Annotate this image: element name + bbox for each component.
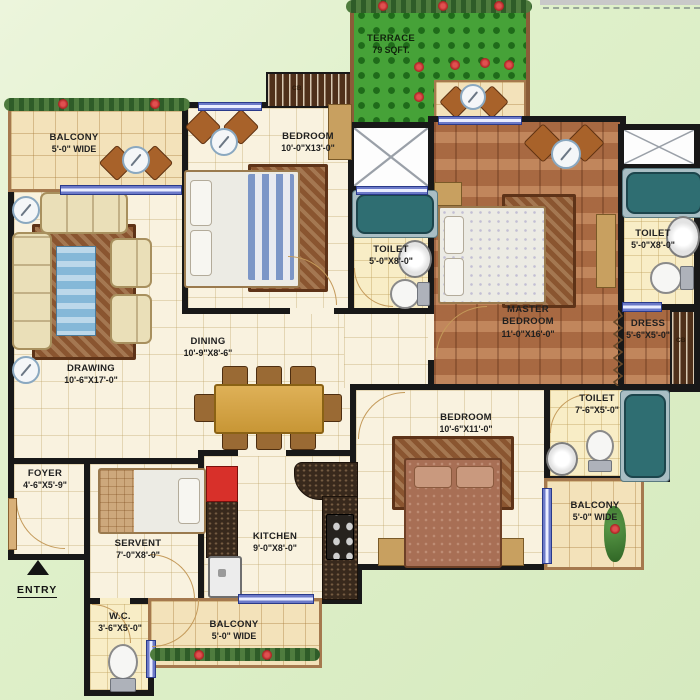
drawing-rug-runner	[56, 246, 96, 336]
room-dims: 5'-0"X8'-0"	[616, 240, 690, 251]
entry-label: ENTRY	[17, 584, 57, 598]
fan-icon	[12, 196, 40, 224]
room-dims: 5'-0" WIDE	[550, 512, 640, 523]
room-label-terrace: TERRACE 79 SQFT.	[358, 33, 424, 57]
washbasin-icon	[546, 442, 578, 476]
side-table	[378, 538, 406, 566]
room-name: TERRACE	[358, 33, 424, 45]
entry-arrow-icon	[27, 560, 49, 575]
bedroom-bottom-bed	[404, 458, 502, 568]
flower-icon	[194, 650, 204, 660]
room-name: W.C.	[88, 611, 152, 623]
toilet-bowl	[586, 430, 614, 462]
room-label-balcony-tl: BALCONY 5'-0" WIDE	[18, 132, 130, 156]
room-balcony-bottom-right	[544, 478, 644, 570]
room-label-servant: SERVENT 7'-0"X8'-0"	[92, 538, 184, 562]
round-table-icon	[460, 84, 486, 110]
room-label-bedroom-bottom: BEDROOM 10'-6"X11'-0"	[408, 412, 524, 436]
room-label-balcony-br: BALCONY 5'-0" WIDE	[550, 500, 640, 524]
bed-pillow	[190, 180, 212, 226]
kitchen-counter-red	[206, 466, 238, 502]
toilet-tank	[110, 678, 136, 692]
toilet-icon	[584, 430, 616, 472]
bed-pillow	[444, 216, 464, 254]
bed-pillow	[444, 258, 464, 296]
flower-icon	[438, 1, 448, 11]
room-label-foyer: FOYER 4'-6"X5'-9"	[6, 468, 84, 492]
plot-boundary-strip	[540, 0, 700, 5]
toilet-tank	[588, 460, 612, 472]
room-dims: 7'-0"X8'-0"	[92, 550, 184, 561]
dining-table	[214, 384, 324, 434]
window-bedroom-top	[198, 102, 262, 111]
bedroom-top-bed	[184, 170, 300, 288]
room-name: DINING	[166, 336, 250, 348]
room-label-dining: DINING 10'-9"X8'-6"	[166, 336, 250, 360]
room-dims: 7'-6"X5'-0"	[556, 405, 638, 416]
flower-icon	[494, 1, 504, 11]
room-dims: 10'-6"X11'-0"	[408, 424, 524, 435]
room-label-dress: DRESS 5'-6"X5'-0"	[614, 318, 682, 342]
room-label-drawing: DRAWING 10'-6"X17'-0"	[48, 363, 134, 387]
room-name: BALCONY	[18, 132, 130, 144]
flower-icon	[150, 99, 160, 109]
room-dims: 11'-0"X16'-0"	[488, 329, 568, 340]
toilet-bowl	[108, 644, 138, 680]
kitchen-sink	[208, 556, 242, 598]
room-name: MASTER BEDROOM	[488, 304, 568, 329]
round-table-icon	[551, 139, 581, 169]
armchair-1	[110, 238, 152, 288]
room-name: DRAWING	[48, 363, 134, 375]
room-dims: 79 SQFT.	[358, 45, 424, 56]
room-label-master-bedroom: MASTER BEDROOM 11'-0"X16'-0"	[488, 304, 568, 340]
toilet-icon	[104, 644, 140, 692]
flower-icon	[504, 60, 514, 70]
wardrobe-cupboard-top	[266, 72, 354, 108]
opening-kitchen	[238, 450, 286, 456]
toilet-bowl	[650, 262, 682, 294]
room-name: DRESS	[614, 318, 682, 330]
room-label-toilet-mid: TOILET 5'-0"X8'-0"	[350, 244, 432, 268]
bed-pillow	[414, 466, 452, 488]
side-table	[434, 182, 462, 206]
room-name: TOILET	[556, 393, 638, 405]
toilet-tank	[417, 282, 430, 306]
room-dims: 5'-0" WIDE	[18, 144, 130, 155]
toilet-icon	[650, 258, 694, 296]
floor-plan: BALCONY 5'-0" WIDE BEDROOM 10'-0"X13'-0"…	[0, 0, 700, 700]
window-balcony-tl	[60, 185, 182, 195]
bed-pillow	[456, 466, 494, 488]
room-dims: 5'-0"X8'-0"	[350, 256, 432, 267]
flower-icon	[378, 1, 388, 11]
room-dims: 10'-9"X8'-6"	[166, 348, 250, 359]
servant-bed	[98, 468, 206, 534]
door-opening-bedroom-top	[290, 308, 334, 314]
room-name: TOILET	[350, 244, 432, 256]
window-toilet-right	[622, 302, 662, 312]
sofa-three-seater-top	[40, 192, 128, 234]
cupboard-label: CB	[292, 85, 301, 92]
plot-boundary-dashed-line	[543, 7, 700, 9]
toilet-bowl	[390, 279, 420, 309]
bathtub-icon	[352, 190, 438, 238]
room-dims: 9'-0"X8'-0"	[232, 543, 318, 554]
room-name: FOYER	[6, 468, 84, 480]
flower-icon	[450, 60, 460, 70]
toilet-icon	[390, 276, 430, 310]
flower-icon	[414, 62, 424, 72]
room-name: BEDROOM	[258, 131, 358, 143]
room-dims: 5'-6"X5'-0"	[614, 330, 682, 341]
bed-pillow	[178, 478, 200, 524]
round-table-icon	[210, 128, 238, 156]
armchair-2	[110, 294, 152, 344]
room-name: SERVENT	[92, 538, 184, 550]
room-name: KITCHEN	[232, 531, 318, 543]
dresser-cabinet	[596, 214, 616, 288]
flower-icon	[58, 99, 68, 109]
flower-icon	[610, 524, 620, 534]
gas-hob-icon	[326, 514, 354, 560]
room-label-toilet-right: TOILET 5'-0"X8'-0"	[616, 228, 690, 252]
room-name: BALCONY	[178, 619, 290, 631]
room-dims: 4'-6"X5'-9"	[6, 480, 84, 491]
room-label-bedroom-top: BEDROOM 10'-0"X13'-0"	[258, 131, 358, 155]
room-dims: 10'-0"X13'-0"	[258, 143, 358, 154]
door-leaf-entry	[8, 498, 17, 550]
flower-icon	[262, 650, 272, 660]
bed-pillow	[190, 230, 212, 276]
room-label-wc: W.C. 3'-6"X5'-0"	[88, 611, 152, 635]
sofa-three-seater-left	[12, 232, 52, 350]
window-toilet-mid	[356, 186, 428, 195]
dining-chair	[194, 394, 216, 422]
flower-icon	[414, 92, 424, 102]
door-opening-wc	[100, 598, 130, 604]
room-name: BEDROOM	[408, 412, 524, 424]
toilet-tank	[680, 266, 694, 290]
bathtub-icon	[622, 168, 700, 218]
room-dims: 10'-6"X17'-0"	[48, 375, 134, 386]
window-master-bedroom	[438, 116, 522, 125]
room-name: TOILET	[616, 228, 690, 240]
garland-decoration	[150, 648, 320, 661]
room-dims: 5'-0" WIDE	[178, 631, 290, 642]
flower-icon	[480, 58, 490, 68]
room-name: BALCONY	[550, 500, 640, 512]
passage-floor	[344, 310, 434, 388]
shaft-mid	[348, 122, 434, 192]
garland-decoration	[4, 98, 190, 111]
room-label-toilet-br: TOILET 7'-6"X5'-0"	[556, 393, 638, 417]
bed-blanket	[100, 470, 134, 532]
kitchen-counter-top	[294, 462, 358, 500]
room-dims: 3'-6"X5'-0"	[88, 623, 152, 634]
room-label-balcony-bottom: BALCONY 5'-0" WIDE	[178, 619, 290, 643]
fan-icon	[12, 356, 40, 384]
door-opening-master	[428, 314, 434, 360]
cupboard-label: CB	[676, 337, 685, 344]
room-label-kitchen: KITCHEN 9'-0"X8'-0"	[232, 531, 318, 555]
master-bed	[438, 206, 546, 304]
window-kitchen	[238, 594, 314, 604]
